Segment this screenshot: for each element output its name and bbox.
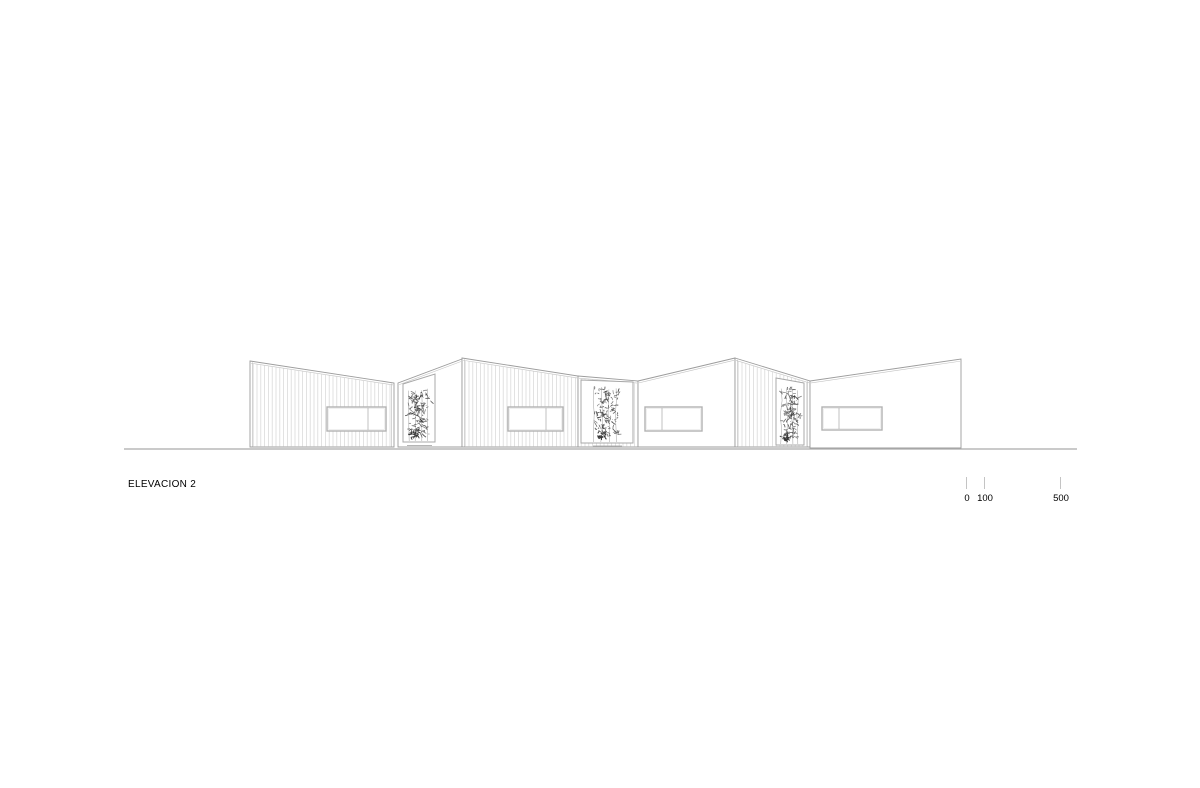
plant-dot — [786, 413, 787, 414]
plant-dot — [412, 411, 413, 412]
plant-foliage-stroke — [605, 387, 606, 390]
plant-dot — [796, 400, 797, 401]
plant-foliage-stroke — [423, 419, 425, 420]
scale-label: 0 — [964, 493, 969, 504]
scale-tick — [966, 477, 967, 489]
plant-dot — [426, 405, 427, 406]
plant-dot — [790, 399, 791, 400]
elevation-drawing — [0, 0, 1200, 788]
plant-dot — [604, 402, 605, 403]
plant-dot — [613, 426, 614, 427]
plant-dot — [616, 392, 617, 393]
plant-dot — [428, 433, 429, 434]
plant-dot — [614, 431, 615, 432]
scale-tick — [1060, 477, 1061, 489]
plant-dot — [789, 432, 790, 433]
plant-dot — [415, 399, 416, 400]
plant-dot — [791, 398, 792, 399]
plant-dot — [609, 427, 610, 428]
plant-dot — [798, 414, 799, 415]
plant-dot — [599, 425, 600, 426]
plant-dot — [418, 395, 419, 396]
plant-dot — [612, 419, 613, 420]
plant-foliage-stroke — [792, 428, 794, 429]
page: ELEVACION 2 0 100 500 — [0, 0, 1200, 788]
plant-dot — [609, 435, 610, 436]
plant-dot — [617, 415, 618, 416]
plant-dot — [612, 421, 613, 422]
plant-dot — [788, 411, 789, 412]
plant-dot — [427, 429, 428, 430]
plant-dot — [412, 402, 413, 403]
plant-dot — [417, 421, 418, 422]
plant-dot — [791, 410, 792, 411]
plant-dot — [416, 428, 417, 429]
window — [327, 407, 386, 431]
plant-dot — [614, 410, 615, 411]
plant-dot — [410, 408, 411, 409]
scale-label: 100 — [977, 493, 993, 504]
plant-dot — [611, 407, 612, 408]
plant-dot — [791, 410, 792, 411]
plant-base-cluster-stroke — [600, 436, 601, 438]
plant-dot — [790, 421, 791, 422]
plant-dot — [792, 409, 793, 410]
scale-tick — [984, 477, 985, 489]
plant-base-cluster-stroke — [786, 436, 788, 437]
window — [822, 407, 882, 430]
plant-dot — [598, 428, 599, 429]
plant-dot — [793, 401, 794, 402]
window — [645, 407, 702, 431]
facade-module-b — [462, 358, 578, 447]
plant-dot — [422, 415, 423, 416]
plant-dot — [599, 419, 600, 420]
drawing-title: ELEVACION 2 — [128, 479, 196, 490]
plant-base-cluster-stroke — [605, 431, 606, 433]
plant-dot — [419, 417, 420, 418]
plant-dot — [600, 398, 601, 399]
plant-dot — [792, 436, 793, 437]
plant-dot — [423, 430, 424, 431]
scale-label: 500 — [1053, 493, 1069, 504]
plant-base-cluster-stroke — [787, 441, 788, 443]
plant-dot — [603, 410, 604, 411]
plant-base-cluster-stroke — [785, 435, 789, 436]
plant-foliage-stroke — [793, 389, 796, 390]
window — [508, 407, 563, 431]
plant-dot — [783, 406, 784, 407]
plant-dot — [409, 428, 410, 429]
plant-dot — [608, 426, 609, 427]
plant-dot — [793, 403, 794, 404]
plant-dot — [422, 418, 423, 419]
plant-dot — [798, 425, 799, 426]
plant-dot — [793, 415, 794, 416]
